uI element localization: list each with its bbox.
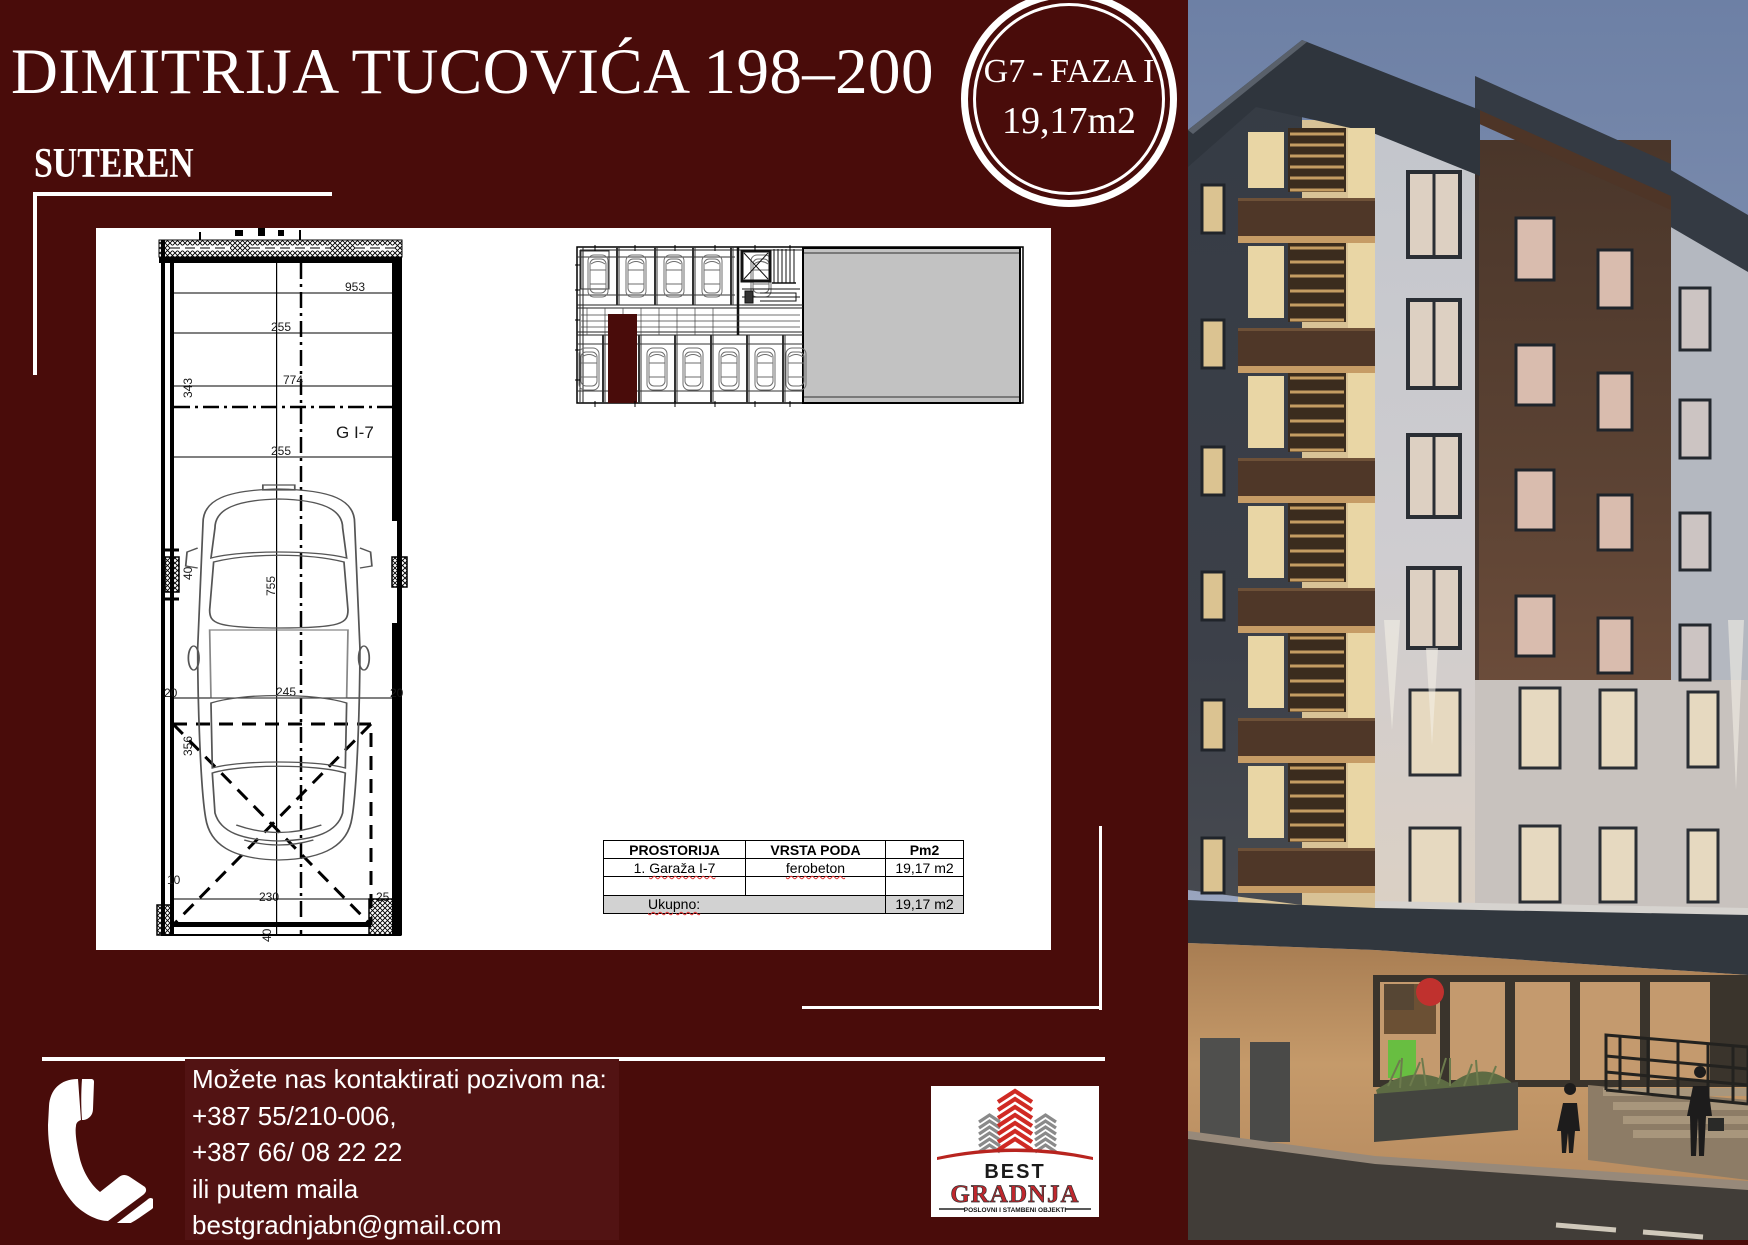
svg-text:953: 953 xyxy=(345,280,365,294)
svg-text:POSLOVNI I STAMBENI OBJEKTI: POSLOVNI I STAMBENI OBJEKTI xyxy=(964,1207,1067,1214)
svg-text:755: 755 xyxy=(264,576,278,596)
svg-text:255: 255 xyxy=(271,320,291,334)
svg-text:20: 20 xyxy=(164,686,178,700)
svg-text:230: 230 xyxy=(259,890,279,904)
svg-text:40: 40 xyxy=(181,566,195,580)
svg-text:G I-7: G I-7 xyxy=(336,423,374,442)
svg-text:20: 20 xyxy=(390,686,404,700)
svg-text:10: 10 xyxy=(167,873,181,887)
svg-text:343: 343 xyxy=(181,378,195,398)
svg-text:GRADNJA: GRADNJA xyxy=(950,1181,1079,1208)
svg-text:255: 255 xyxy=(271,444,291,458)
svg-text:245: 245 xyxy=(276,685,296,699)
svg-text:BEST: BEST xyxy=(984,1161,1045,1183)
svg-text:774: 774 xyxy=(283,373,303,387)
